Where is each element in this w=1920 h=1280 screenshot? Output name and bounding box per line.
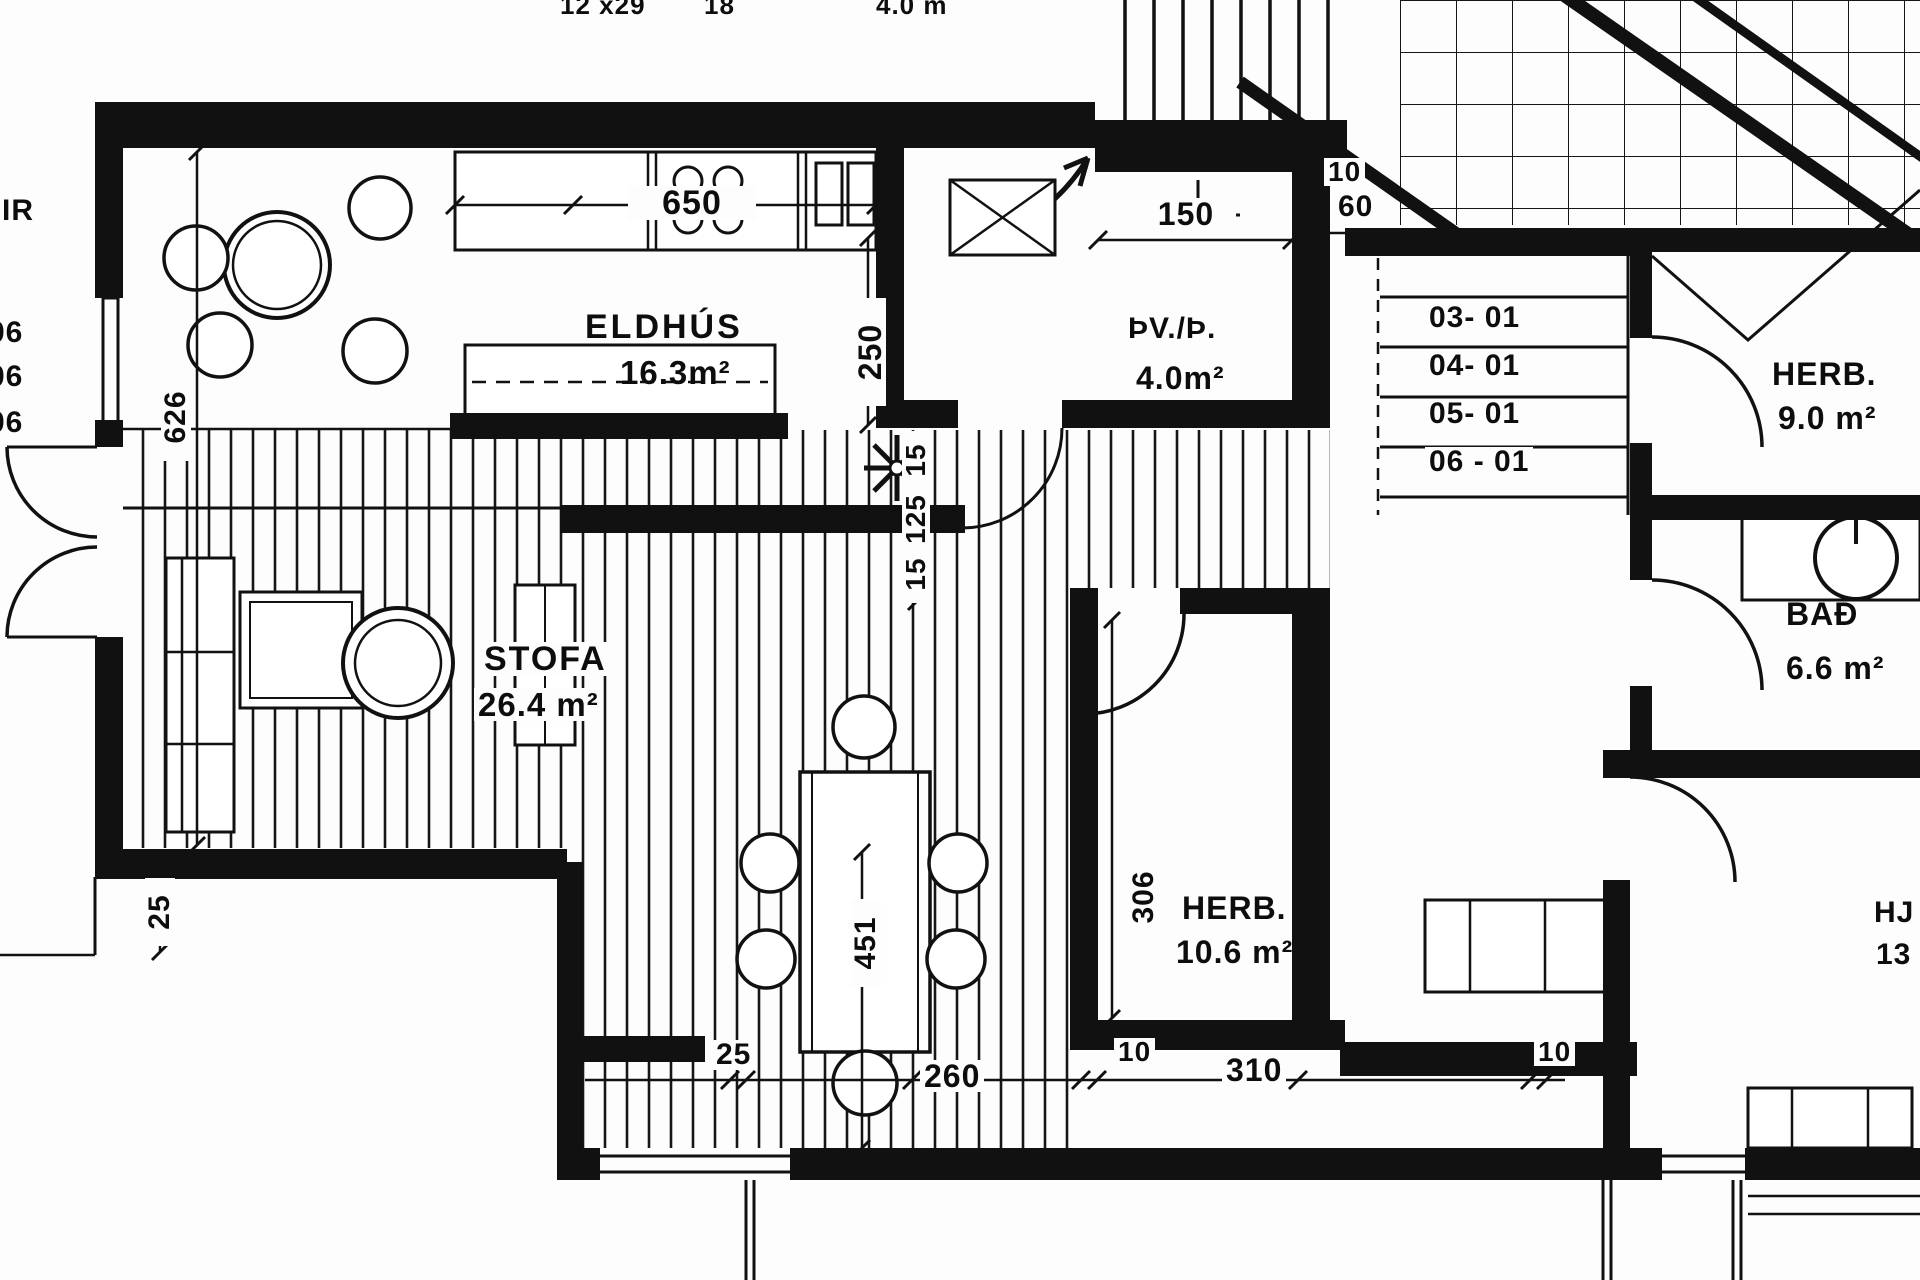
room-area-kitchen: 16.3m² [620, 356, 731, 389]
kitchen-table [224, 212, 330, 318]
room-area-bath: 6.6 m² [1786, 652, 1884, 684]
dim-10-right: 10 [1534, 1038, 1575, 1066]
floorplan-page: 12 x29 18 4.0 m 650 ELDHÚS 16.3m² 250 15… [0, 0, 1920, 1280]
dim-306: 306 [1129, 853, 1159, 941]
chair [349, 177, 411, 239]
room-area-bedroom2: 9.0 m² [1778, 402, 1876, 434]
chair [737, 930, 795, 988]
kitchen-sink [848, 163, 874, 225]
chair [833, 696, 895, 758]
dim-250: 250 [854, 298, 886, 406]
room-label-laundry: ÞV./Þ. [1128, 314, 1216, 344]
wardrobe [1425, 900, 1605, 992]
entry-door-arc [7, 547, 97, 637]
round-side-table [343, 608, 453, 718]
dim-626: 626 [161, 373, 191, 461]
dim-10-left: 10 [1114, 1038, 1155, 1066]
stair-note-fragment: 18 [704, 0, 735, 18]
dim-25-bottom: 25 [712, 1040, 755, 1070]
dim-stair-10: 10 [1324, 158, 1365, 186]
sofa [166, 558, 234, 832]
stair-level-04: 04- 01 [1425, 351, 1524, 381]
entry-door-arc [7, 447, 97, 537]
room-label-bedroom2: HERB. [1772, 358, 1877, 390]
chair [927, 930, 985, 988]
chair [741, 834, 799, 892]
left-edge-fragment: 06 [0, 362, 23, 392]
room-label-bath: BAÐ [1786, 598, 1858, 630]
right-edge-fragment: HJ [1874, 898, 1914, 928]
room-area-bedroom1: 10.6 m² [1176, 936, 1293, 968]
dim-25-terrace: 25 [145, 878, 175, 946]
door-arc [1084, 614, 1184, 714]
dim-15b: 15 [902, 545, 930, 603]
chair [929, 834, 987, 892]
kitchen-sink [816, 163, 842, 225]
dim-451: 451 [851, 899, 881, 987]
door-arc [1630, 777, 1735, 882]
stair-note-fragment: 12 x29 [560, 0, 646, 18]
desk [1748, 1088, 1912, 1148]
door-arc [1652, 337, 1762, 447]
room-label-kitchen: ELDHÚS [585, 310, 743, 344]
chair [833, 1051, 897, 1115]
stair-level-03: 03- 01 [1425, 303, 1524, 333]
chair [343, 319, 407, 383]
dim-650: 650 [628, 186, 756, 220]
stair-level-05: 05- 01 [1425, 399, 1524, 429]
stair-level-06: 06 - 01 [1425, 447, 1533, 477]
dim-150: 150 [1136, 198, 1236, 230]
dim-260: 260 [920, 1060, 984, 1092]
room-area-laundry: 4.0m² [1136, 362, 1225, 394]
area-note-fragment: 4.0 m [876, 0, 948, 18]
room-label-living: STOFA [480, 642, 611, 676]
dim-310: 310 [1222, 1054, 1286, 1086]
left-edge-fragment: 06 [0, 408, 23, 438]
left-edge-fragment: 06 [0, 318, 23, 348]
room-area-living: 26.4 m² [474, 688, 603, 721]
right-edge-fragment: 13 [1876, 940, 1911, 970]
room-label-bedroom1: HERB. [1182, 892, 1287, 924]
dim-stair-60: 60 [1334, 192, 1377, 222]
left-edge-fragment: IR [2, 196, 34, 226]
